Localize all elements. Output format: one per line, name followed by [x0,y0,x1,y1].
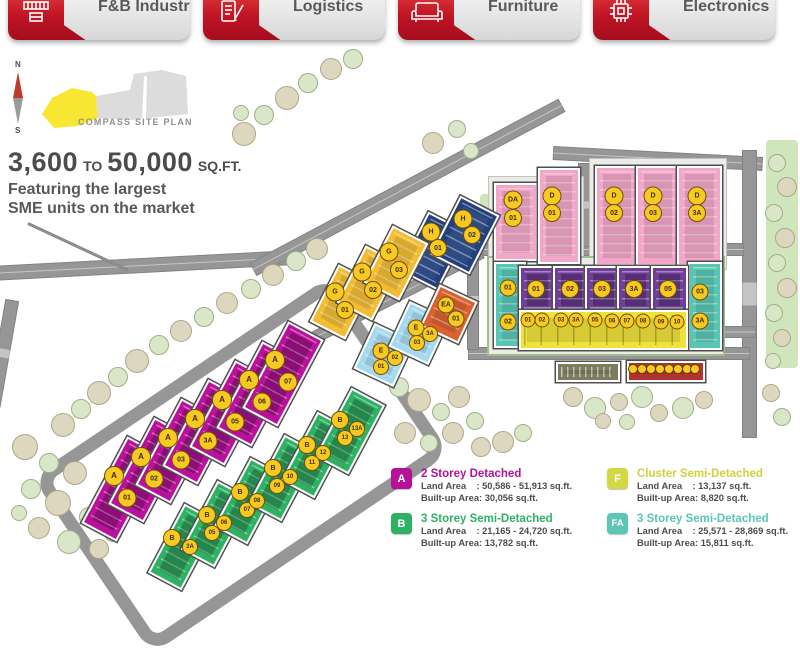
tree-icon [28,517,50,539]
unit-label: 02 [364,281,382,299]
unit-label: 01 [448,311,465,328]
unit-label: 05 [659,280,677,298]
unit-label: 06 [216,515,232,531]
unit-label: 3A [569,313,584,328]
unit-label: 03 [644,204,662,222]
unit-label: 01 [527,280,545,298]
storefront-icon [21,0,51,25]
unit-label: 02 [535,313,550,328]
tree-icon [466,412,484,430]
unit-label: 05 [588,313,603,328]
unit-label: 3A [625,280,643,298]
tree-icon [71,399,91,419]
tree-icon [768,254,786,272]
headline-min: 3,600 [8,147,78,178]
tree-icon [492,431,514,453]
tree-icon [773,329,791,347]
unit-label: D [605,187,624,206]
unit-label: 02 [561,280,579,298]
banner-electronics[interactable]: Electronics [593,0,775,40]
unit-label: 3A [182,539,198,555]
unit-label: B [163,529,181,547]
tree-icon [422,132,444,154]
headline-to: TO [83,158,102,174]
tree-icon [420,434,438,452]
chip-icon [606,0,636,25]
legend-swatch-fa: FA [607,513,628,534]
unit-label: 09 [654,315,669,330]
legend-title: 3 Storey Semi-Detached [421,513,572,525]
unit-label: 02 [463,226,481,244]
unit-label: 02 [605,204,623,222]
sofa-icon [411,0,443,25]
tree-icon [695,391,713,409]
unit-dot [690,364,700,374]
tree-icon [108,367,128,387]
tree-icon [463,143,479,159]
tree-icon [471,437,491,457]
unit-label: 03 [593,280,611,298]
legend-builtup-area: Built-up Area: 15,811 sq.ft. [637,538,788,550]
legend-builtup-area: Built-up Area: 8,820 sq.ft. [637,493,763,505]
legend-land-area: Land Area : 25,571 - 28,869 sq.ft. [637,526,788,538]
tree-icon [765,353,781,369]
unit-label: A [239,370,259,390]
tree-icon [777,177,797,197]
headline-unit: SQ.FT. [198,158,242,174]
tree-icon [232,122,256,146]
unit-label: 01 [336,301,354,319]
unit-label: 03 [692,284,709,301]
road [722,326,756,338]
tree-icon [87,381,111,405]
unit-label: D [644,187,663,206]
compass-north-label: N [15,60,21,69]
tree-icon [343,49,363,69]
unit-label: B [298,436,316,454]
compass-icon [10,70,26,126]
banner-label: Electronics [683,0,769,16]
road [0,299,19,408]
legend-title: 2 Storey Detached [421,468,572,480]
tree-icon [286,251,306,271]
legend-title: Cluster Semi-Detached [637,468,763,480]
tree-icon [563,387,583,407]
unit-label: A [265,350,285,370]
headline-sub2: SME units on the market [8,200,195,218]
legend-builtup-area: Built-up Area: 13,782 sq.ft. [421,538,572,550]
tree-icon [320,58,342,80]
headline: 3,600 TO 50,000 SQ.FT. [8,147,241,178]
tree-icon [194,307,214,327]
unit-label: 05 [226,413,245,432]
tree-icon [51,413,75,437]
tree-icon [45,490,71,516]
unit-label: A [131,447,151,467]
tree-icon [12,434,38,460]
legend-swatch-f: F [607,468,628,489]
tree-icon [619,414,635,430]
tree-icon [233,105,249,121]
unit-label: 3A [199,432,218,451]
tree-icon [306,238,328,260]
unit-label: 08 [636,314,651,329]
unit-label: A [158,428,178,448]
tree-icon [241,279,261,299]
banner-label: F&B Industry [98,0,198,16]
building-olive [556,362,620,382]
unit-label: 01 [543,204,561,222]
tree-icon [11,505,27,521]
tree-icon [672,397,694,419]
tree-icon [631,386,653,408]
legend-swatch-b: B [391,513,412,534]
tree-icon [762,384,780,402]
building-teal [688,262,722,350]
tree-icon [777,278,797,298]
tree-icon [448,386,470,408]
legend-land-area: Land Area : 21,165 - 24,720 sq.ft. [421,526,572,538]
road [0,250,290,281]
legend-item-a: A 2 Storey Detached Land Area : 50,586 -… [391,468,572,504]
road [742,150,757,438]
unit-label: 06 [605,314,620,329]
unit-label: 02 [500,314,517,331]
unit-label: 03 [172,451,191,470]
headline-sub1: Featuring the largest [8,181,166,199]
banner-label: Logistics [293,0,363,16]
tree-icon [216,292,238,314]
unit-label: 3A [422,326,438,342]
tree-icon [394,422,416,444]
unit-label: 01 [429,239,447,257]
legend-land-area: Land Area : 50,586 - 51,913 sq.ft. [421,481,572,493]
banner-furniture[interactable]: Furniture [398,0,580,40]
tree-icon [514,424,532,442]
legend-item-b: B 3 Storey Semi-Detached Land Area : 21,… [391,513,572,549]
tree-icon [432,403,450,421]
unit-label: B [198,506,216,524]
tree-icon [768,154,786,172]
tree-icon [650,404,668,422]
unit-label: D [543,187,562,206]
unit-label: B [264,459,282,477]
unit-label: G [353,263,372,282]
unit-label: 12 [315,445,331,461]
tree-icon [63,461,87,485]
unit-label: 13A [349,421,365,437]
tree-icon [773,408,791,426]
tree-icon [442,422,464,444]
unit-label: 01 [118,489,137,508]
unit-label: DA [504,191,523,210]
tree-icon [407,388,431,412]
legend-swatch-a: A [391,468,412,489]
tree-icon [21,479,41,499]
unit-label: 07 [279,373,298,392]
tree-icon [39,453,59,473]
tree-icon [89,539,109,559]
unit-label: 01 [521,313,536,328]
mini-plan-caption: COMPASS SITE PLAN [78,117,193,127]
unit-label: 10 [282,469,298,485]
tree-icon [262,264,284,286]
unit-label: 01 [504,209,522,227]
tree-icon [275,86,299,110]
tree-icon [149,335,169,355]
tree-icon [298,73,318,93]
tree-icon [595,413,611,429]
unit-label: G [380,243,399,262]
tree-icon [610,393,628,411]
unit-label: 3A [688,204,706,222]
unit-label: G [326,283,345,302]
unit-label: 06 [253,393,272,412]
tree-icon [448,120,466,138]
tree-icon [170,320,192,342]
unit-label: B [331,411,349,429]
headline-max: 50,000 [107,147,193,178]
unit-label: 3A [692,313,709,330]
banner-logistics[interactable]: Logistics [203,0,385,40]
legend-item-fa: FA 3 Storey Semi-Detached Land Area : 25… [607,513,788,549]
tree-icon [765,304,783,322]
unit-label: 08 [249,493,265,509]
legend-item-f: F Cluster Semi-Detached Land Area : 13,1… [607,468,763,504]
tree-icon [775,228,795,248]
unit-label: 03 [390,261,408,279]
tree-icon [125,349,149,373]
compass-south-label: S [15,126,20,135]
tree-icon [254,105,274,125]
unit-label: 01 [500,280,517,297]
unit-label: A [212,390,232,410]
banner-fnb-industry[interactable]: F&B Industry [8,0,190,40]
legend-title: 3 Storey Semi-Detached [637,513,788,525]
unit-label: 07 [620,314,635,329]
legend-land-area: Land Area : 13,137 sq.ft. [637,481,763,493]
tree-icon [57,530,81,554]
unit-label: B [231,483,249,501]
legend-builtup-area: Built-up Area: 30,056 sq.ft. [421,493,572,505]
unit-label: D [688,187,707,206]
unit-label: 02 [145,470,164,489]
unit-label: 01 [373,359,389,375]
unit-label: 03 [554,313,569,328]
tree-icon [765,204,783,222]
unit-label: A [185,409,205,429]
banner-label: Furniture [488,0,558,16]
clipboard-icon [216,0,246,25]
unit-label: A [104,466,124,486]
unit-label: 02 [387,350,403,366]
unit-label: 10 [670,315,685,330]
